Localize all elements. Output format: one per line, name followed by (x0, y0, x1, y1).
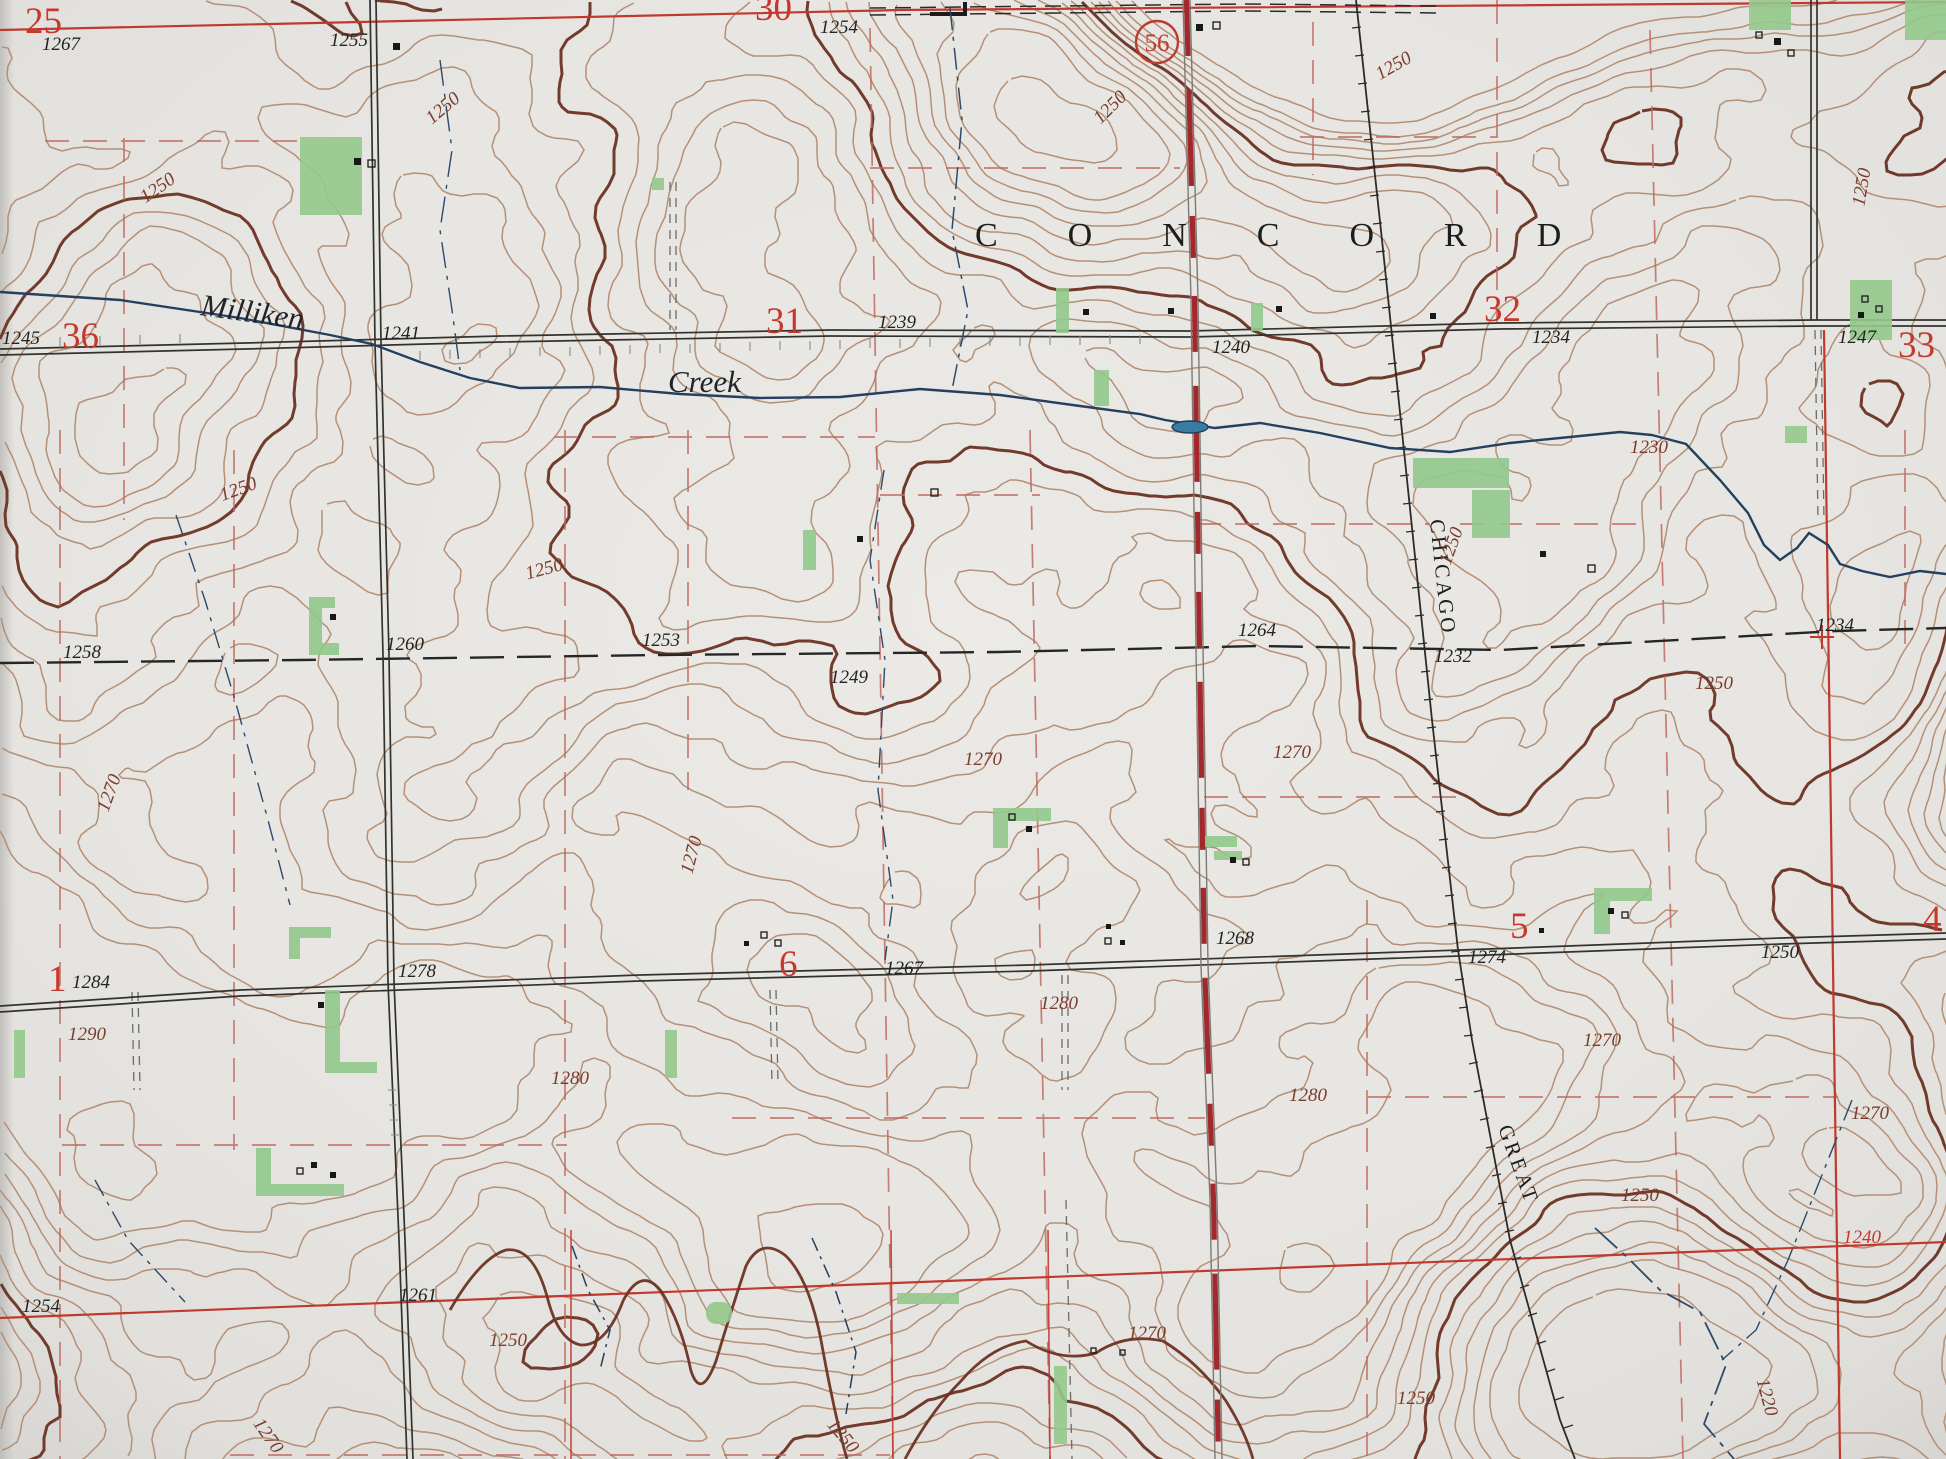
svg-text:1239: 1239 (878, 312, 917, 333)
svg-text:1240: 1240 (1843, 1227, 1882, 1248)
svg-text:32: 32 (1484, 289, 1521, 330)
svg-text:1270: 1270 (1273, 742, 1312, 763)
svg-text:5: 5 (1510, 906, 1529, 947)
svg-text:1241: 1241 (382, 323, 420, 344)
svg-text:1255: 1255 (330, 30, 368, 51)
svg-text:1234: 1234 (1816, 615, 1855, 636)
svg-text:33: 33 (1898, 325, 1935, 366)
svg-text:1268: 1268 (1216, 928, 1255, 949)
svg-text:1245: 1245 (2, 328, 40, 349)
svg-text:1280: 1280 (1289, 1085, 1328, 1106)
svg-text:1274: 1274 (1468, 947, 1507, 968)
svg-text:1260: 1260 (386, 634, 425, 655)
svg-text:1230: 1230 (1630, 437, 1669, 458)
svg-text:1232: 1232 (1434, 646, 1473, 667)
svg-text:CONCORD: CONCORD (975, 217, 1631, 254)
svg-text:4: 4 (1923, 899, 1942, 940)
svg-text:1264: 1264 (1238, 620, 1277, 641)
svg-text:1254: 1254 (820, 17, 859, 38)
svg-text:6: 6 (779, 944, 798, 985)
svg-text:1270: 1270 (1851, 1103, 1890, 1124)
svg-text:56: 56 (1145, 30, 1170, 57)
svg-text:1254: 1254 (22, 1296, 61, 1317)
svg-text:Creek: Creek (668, 364, 742, 399)
svg-text:1250: 1250 (489, 1330, 528, 1351)
svg-text:1240: 1240 (1212, 337, 1251, 358)
svg-text:30: 30 (755, 0, 792, 29)
svg-text:1290: 1290 (68, 1024, 107, 1045)
svg-text:1249: 1249 (830, 667, 869, 688)
svg-text:1280: 1280 (1040, 993, 1079, 1014)
svg-text:1253: 1253 (642, 630, 680, 651)
svg-text:1270: 1270 (1583, 1030, 1622, 1051)
svg-text:1261: 1261 (399, 1285, 437, 1306)
svg-text:1: 1 (48, 959, 67, 1000)
svg-text:1270: 1270 (964, 749, 1003, 770)
svg-text:36: 36 (62, 316, 99, 357)
svg-text:1250: 1250 (1397, 1388, 1436, 1409)
svg-text:31: 31 (766, 301, 803, 342)
svg-text:1284: 1284 (72, 972, 111, 993)
svg-text:1234: 1234 (1532, 327, 1571, 348)
svg-text:1270: 1270 (1128, 1323, 1167, 1344)
svg-text:1258: 1258 (63, 642, 102, 663)
svg-text:1267: 1267 (885, 958, 925, 979)
svg-text:1247: 1247 (1838, 327, 1878, 348)
svg-text:1280: 1280 (551, 1068, 590, 1089)
svg-text:1278: 1278 (398, 961, 437, 982)
svg-text:1250: 1250 (1695, 673, 1734, 694)
svg-text:1267: 1267 (42, 34, 82, 55)
svg-text:1250: 1250 (1621, 1185, 1660, 1206)
svg-text:1250: 1250 (1761, 942, 1800, 963)
